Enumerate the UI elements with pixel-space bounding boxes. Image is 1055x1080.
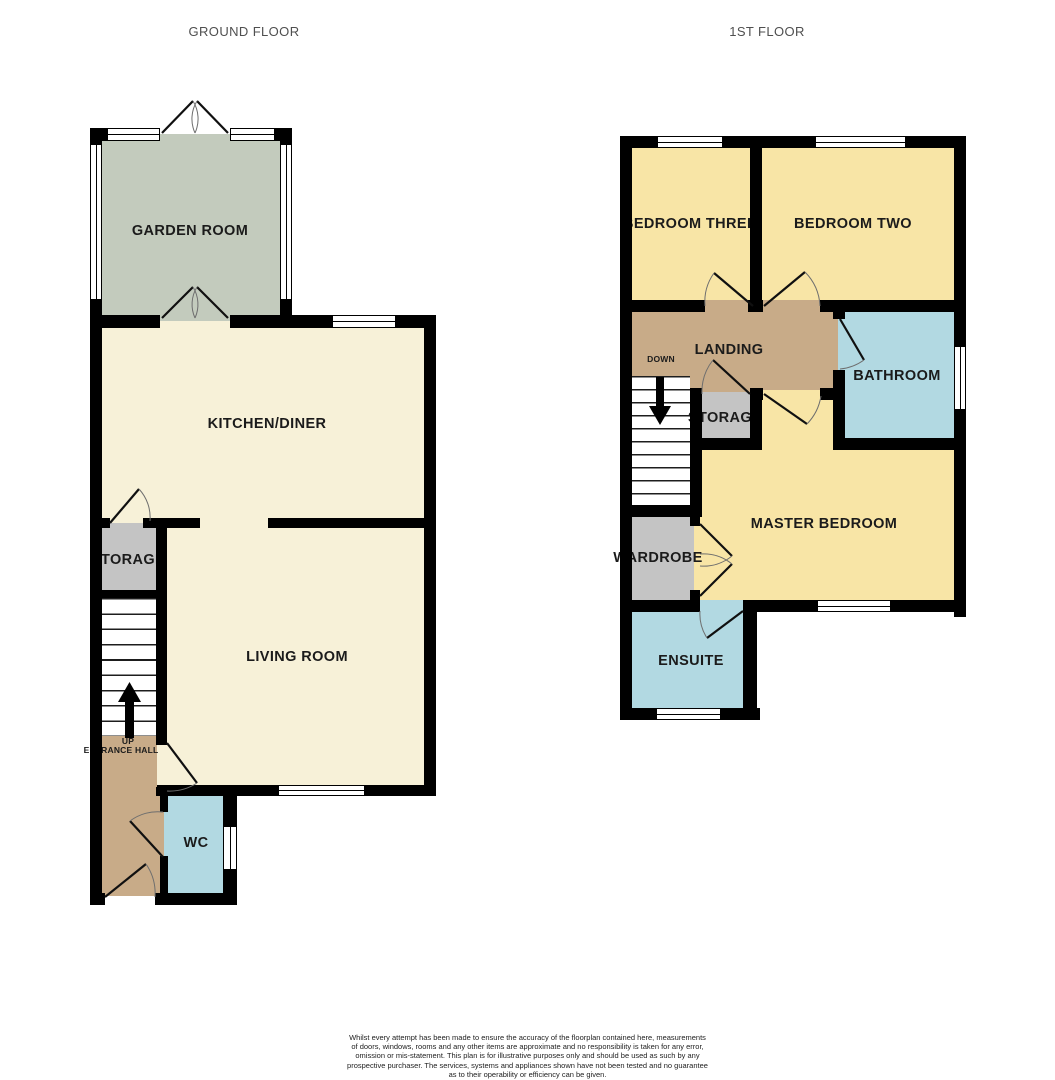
wall <box>157 785 278 796</box>
window <box>278 785 365 796</box>
window <box>223 826 237 870</box>
disclaimer-line: as to their operability or efficiency ca… <box>0 1070 1055 1079</box>
wc-label: WC <box>184 835 209 851</box>
wall <box>620 708 656 720</box>
wall <box>223 795 237 826</box>
wall <box>748 300 763 312</box>
wall <box>230 315 332 328</box>
wall <box>833 370 845 442</box>
garden-room-label: GARDEN ROOM <box>132 223 248 239</box>
bedroom-two-label: BEDROOM TWO <box>794 216 912 232</box>
wall <box>690 438 762 450</box>
wall <box>96 590 157 598</box>
wall <box>743 600 757 720</box>
wall <box>620 600 700 612</box>
floorplan-canvas: GROUND FLOOR 1ST FLOOR <box>0 0 1055 1080</box>
wall <box>743 600 817 612</box>
wall <box>424 315 436 795</box>
disclaimer-line: of doors, windows, rooms and any other i… <box>0 1042 1055 1051</box>
window <box>656 708 721 720</box>
stairs-down <box>630 376 690 506</box>
wall <box>690 388 702 516</box>
window <box>332 315 396 328</box>
window <box>954 346 966 410</box>
bathroom-label: BATHROOM <box>853 368 941 384</box>
window <box>657 136 723 148</box>
wall <box>90 893 105 905</box>
wall <box>820 388 845 400</box>
disclaimer-line: omission or mis-statement. This plan is … <box>0 1051 1055 1060</box>
garden-room-exterior-doors <box>162 101 228 133</box>
down-label: DOWN <box>647 354 675 364</box>
window <box>230 128 275 141</box>
wall <box>750 146 762 310</box>
wall <box>833 438 966 450</box>
wall <box>891 600 966 612</box>
kitchen-diner-label: KITCHEN/DINER <box>208 416 327 432</box>
wall <box>365 785 436 796</box>
wall <box>620 136 632 720</box>
wall <box>160 856 168 898</box>
disclaimer-line: prospective purchaser. The services, sys… <box>0 1061 1055 1070</box>
wall <box>160 795 168 812</box>
room-entrance-hall <box>96 736 164 896</box>
window <box>815 136 906 148</box>
wall <box>690 517 700 526</box>
wall <box>280 128 292 144</box>
wall <box>96 518 110 528</box>
wall <box>155 893 237 905</box>
wall <box>620 505 702 517</box>
landing-label: LANDING <box>695 342 764 358</box>
window <box>90 144 102 300</box>
disclaimer: Whilst every attempt has been made to en… <box>0 1033 1055 1080</box>
wall <box>620 300 705 312</box>
window <box>107 128 160 141</box>
wall <box>723 136 815 148</box>
master-bedroom-label: MASTER BEDROOM <box>751 516 898 532</box>
wall <box>156 518 167 745</box>
wall <box>90 128 102 144</box>
ensuite-label: ENSUITE <box>658 653 724 669</box>
storage-ground-label: STORAGE <box>91 552 165 568</box>
disclaimer-line: Whilst every attempt has been made to en… <box>0 1033 1055 1042</box>
window <box>280 144 292 300</box>
first-floor-title: 1ST FLOOR <box>729 24 805 39</box>
wall <box>268 518 436 528</box>
wall <box>721 708 760 720</box>
wall <box>143 518 157 528</box>
living-room-label: LIVING ROOM <box>246 649 348 665</box>
stairs-up <box>100 598 157 736</box>
wall <box>954 136 966 346</box>
window <box>817 600 891 612</box>
wall <box>833 300 845 319</box>
bedroom-three-label: BEDROOM THREE <box>623 216 757 232</box>
wall <box>90 315 102 905</box>
ground-floor-title: GROUND FLOOR <box>189 24 300 39</box>
